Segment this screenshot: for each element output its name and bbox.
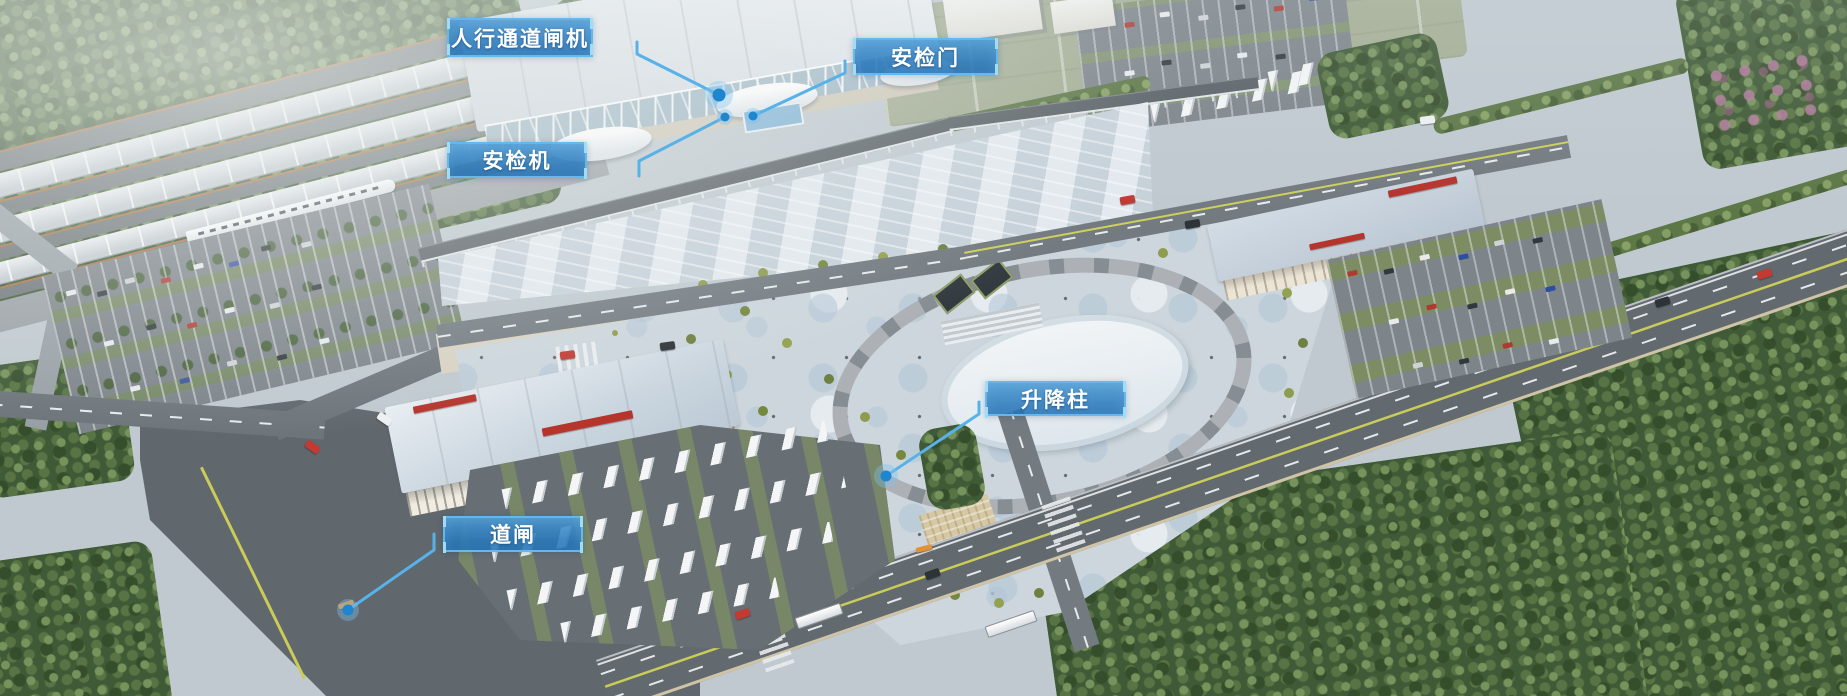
forest-bottom-left bbox=[0, 539, 174, 696]
parked-cars bbox=[1347, 270, 1358, 277]
parked-cars bbox=[66, 289, 77, 296]
callout-lifting-bollard[interactable]: 升降柱 bbox=[985, 381, 1126, 416]
callout-road-barrier[interactable]: 道闸 bbox=[443, 516, 583, 552]
callout-security-gate[interactable]: 安检门 bbox=[853, 38, 998, 75]
callout-pedestrian-turnstile[interactable]: 人行通道闸机 bbox=[447, 18, 593, 57]
tree-row-top-right-2 bbox=[1432, 57, 1690, 136]
callout-xray-scanner[interactable]: 安检机 bbox=[447, 142, 587, 178]
plaza-trees bbox=[612, 330, 618, 336]
aerial-rendering-stage: 人行通道闸机 安检门 安检机 升降柱 道闸 bbox=[0, 0, 1847, 696]
